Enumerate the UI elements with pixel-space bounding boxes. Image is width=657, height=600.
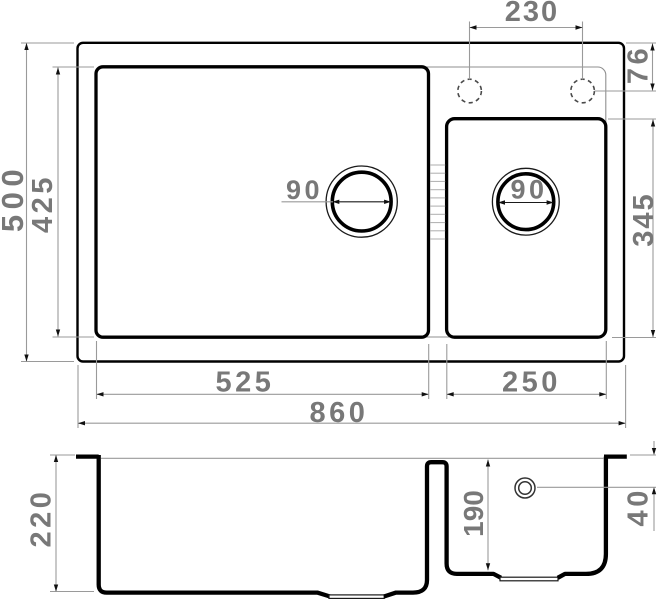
svg-text:90: 90 [510, 175, 547, 205]
svg-text:220: 220 [26, 489, 58, 548]
svg-text:860: 860 [310, 397, 369, 429]
svg-text:425: 425 [27, 174, 59, 233]
svg-text:345: 345 [628, 192, 657, 246]
svg-text:90: 90 [286, 175, 323, 205]
svg-text:250: 250 [502, 367, 561, 399]
svg-text:500: 500 [0, 164, 30, 232]
svg-text:76: 76 [623, 45, 655, 84]
svg-text:525: 525 [216, 367, 275, 399]
svg-text:230: 230 [505, 0, 559, 28]
svg-text:40: 40 [623, 487, 655, 526]
svg-text:190: 190 [458, 490, 489, 537]
